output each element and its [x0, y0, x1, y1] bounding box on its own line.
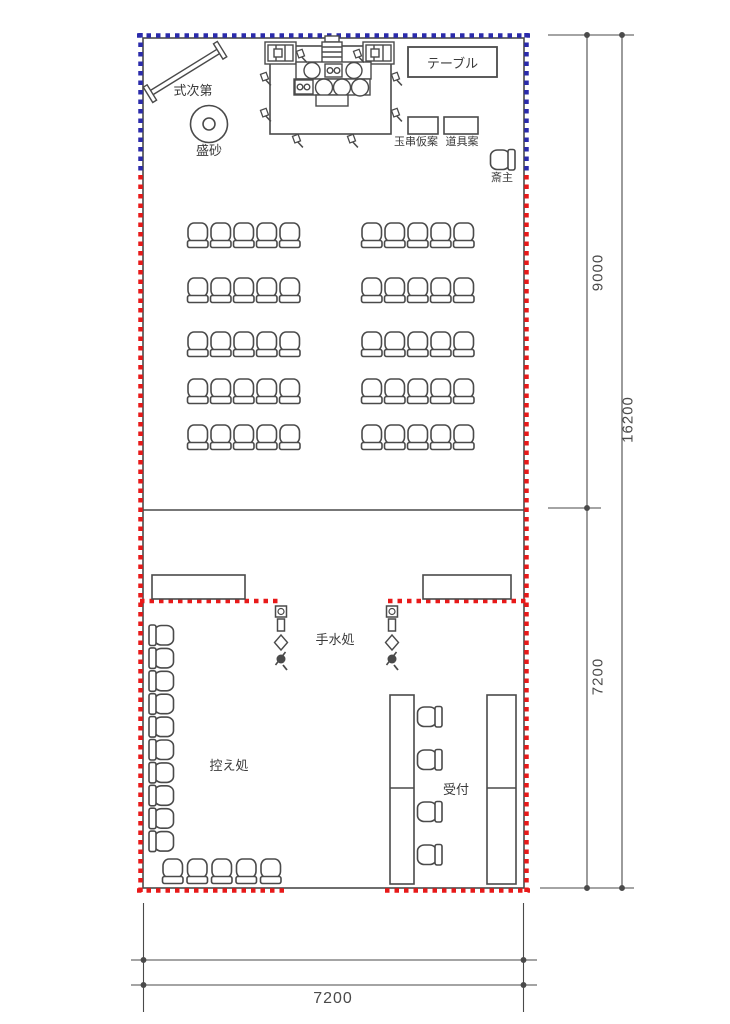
chair-icon — [385, 278, 406, 303]
altar — [265, 36, 394, 134]
chair-icon — [454, 332, 475, 357]
chair-icon — [454, 278, 475, 303]
chair-icon — [280, 223, 301, 248]
dim-lower-height: 7200 — [590, 642, 607, 712]
tool-stand-label: 道具案 — [443, 136, 481, 149]
chair-icon — [418, 802, 443, 823]
chair-icon — [362, 278, 383, 303]
priest-chair — [491, 150, 516, 171]
chair-icon — [236, 859, 257, 884]
chair-icon — [431, 332, 452, 357]
chair-icon — [431, 278, 452, 303]
chair-icon — [431, 425, 452, 450]
floor-plan-canvas — [0, 0, 730, 1024]
chair-icon — [408, 223, 429, 248]
priest-label: 斎主 — [487, 172, 517, 185]
dim-width: 7200 — [298, 990, 368, 1008]
chair-icon — [362, 223, 383, 248]
chair-icon — [280, 278, 301, 303]
chair-icon — [280, 332, 301, 357]
chair-icon — [385, 332, 406, 357]
chair-icon — [211, 223, 232, 248]
chair-icon — [212, 859, 233, 884]
waiting-left-column-chairs — [149, 625, 174, 852]
chair-icon — [211, 379, 232, 404]
chair-icon — [149, 625, 174, 646]
chair-icon — [188, 332, 209, 357]
reception-chairs — [418, 707, 443, 866]
sand-mound-label: 盛砂 — [192, 143, 226, 159]
chair-icon — [149, 762, 174, 783]
chair-icon — [280, 379, 301, 404]
chair-icon — [188, 223, 209, 248]
chair-icon — [362, 425, 383, 450]
temizu-label: 手水処 — [313, 632, 357, 648]
floor-plan: 式次第 盛砂 テーブル 玉串仮案 道具案 斎主 手水処 控え処 受付 9000 … — [0, 0, 730, 1024]
chair-icon — [234, 425, 255, 450]
chair-icon — [149, 717, 174, 738]
chair-icon — [211, 332, 232, 357]
chair-icon — [149, 648, 174, 669]
chair-icon — [257, 332, 278, 357]
chair-icon — [385, 425, 406, 450]
tamagushi-stand-rect — [408, 117, 438, 134]
chair-icon — [234, 332, 255, 357]
chair-icon — [418, 750, 443, 771]
chair-icon — [257, 278, 278, 303]
chair-icon — [408, 278, 429, 303]
chair-icon — [280, 425, 301, 450]
chair-icon — [408, 425, 429, 450]
chair-icon — [257, 223, 278, 248]
chair-icon — [149, 808, 174, 829]
tool-stand-rect — [444, 117, 478, 134]
chair-icon — [418, 845, 443, 866]
chair-icon — [211, 278, 232, 303]
chair-icon — [454, 223, 475, 248]
chair-icon — [188, 379, 209, 404]
chair-icon — [454, 379, 475, 404]
tamagushi-stand-label: 玉串仮案 — [391, 136, 441, 149]
chair-icon — [234, 223, 255, 248]
waiting-bottom-row-chairs — [163, 859, 282, 884]
chair-icon — [257, 425, 278, 450]
chair-icon — [385, 223, 406, 248]
main-hall-chairs — [188, 223, 475, 450]
chair-icon — [163, 859, 184, 884]
chair-icon — [454, 425, 475, 450]
waiting-area-label: 控え処 — [205, 758, 253, 774]
chair-icon — [385, 379, 406, 404]
chair-icon — [362, 379, 383, 404]
chair-icon — [187, 859, 208, 884]
chair-icon — [149, 831, 174, 852]
building-outline — [143, 38, 524, 888]
chair-icon — [149, 740, 174, 761]
chair-icon — [418, 707, 443, 728]
chair-icon — [431, 223, 452, 248]
chair-icon — [149, 671, 174, 692]
chair-icon — [188, 425, 209, 450]
chair-icon — [234, 278, 255, 303]
chair-icon — [188, 278, 209, 303]
program-board-label: 式次第 — [169, 83, 217, 99]
chair-icon — [257, 379, 278, 404]
reception-label: 受付 — [441, 782, 471, 798]
table-label: テーブル — [408, 47, 497, 77]
chair-icon — [149, 785, 174, 806]
chair-icon — [491, 150, 516, 171]
dim-upper-height: 9000 — [590, 238, 607, 308]
chair-icon — [431, 379, 452, 404]
chair-icon — [408, 379, 429, 404]
dim-total-height: 16200 — [620, 385, 637, 455]
chair-icon — [149, 694, 174, 715]
sand-mound — [191, 106, 228, 143]
chair-icon — [261, 859, 282, 884]
chair-icon — [362, 332, 383, 357]
chair-icon — [408, 332, 429, 357]
chair-icon — [211, 425, 232, 450]
chair-icon — [234, 379, 255, 404]
middle-tables — [152, 575, 511, 599]
